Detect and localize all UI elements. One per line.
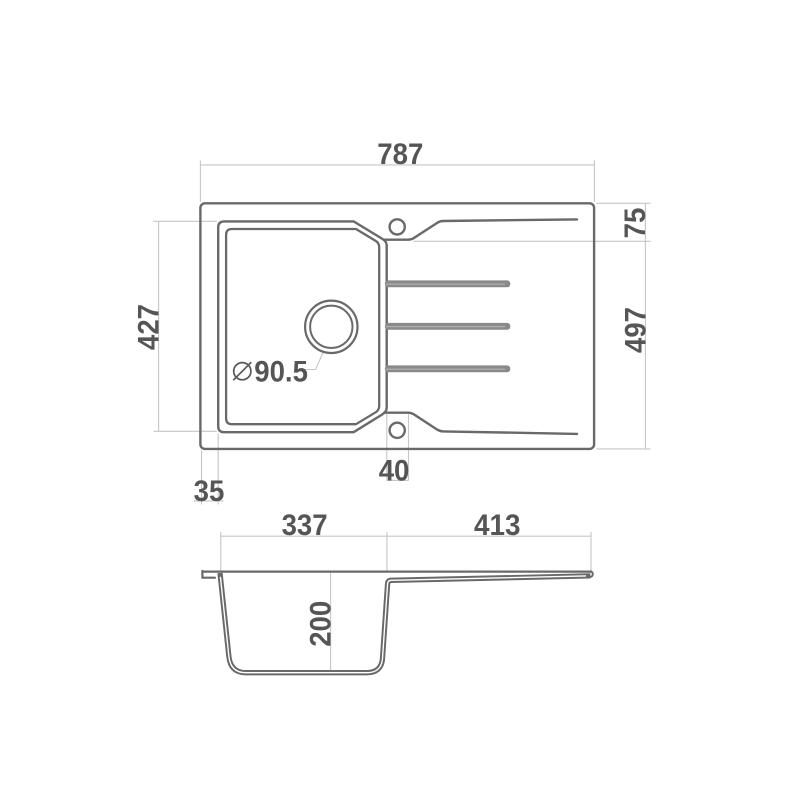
svg-text:200: 200 [305, 601, 338, 647]
svg-text:337: 337 [282, 509, 328, 542]
svg-text:40: 40 [379, 455, 410, 488]
svg-text:413: 413 [474, 509, 521, 542]
svg-text:75: 75 [619, 208, 652, 239]
svg-text:497: 497 [620, 307, 653, 353]
svg-text:90.5: 90.5 [254, 356, 308, 389]
svg-text:787: 787 [377, 138, 423, 171]
svg-text:427: 427 [132, 304, 165, 350]
svg-text:35: 35 [194, 475, 225, 508]
